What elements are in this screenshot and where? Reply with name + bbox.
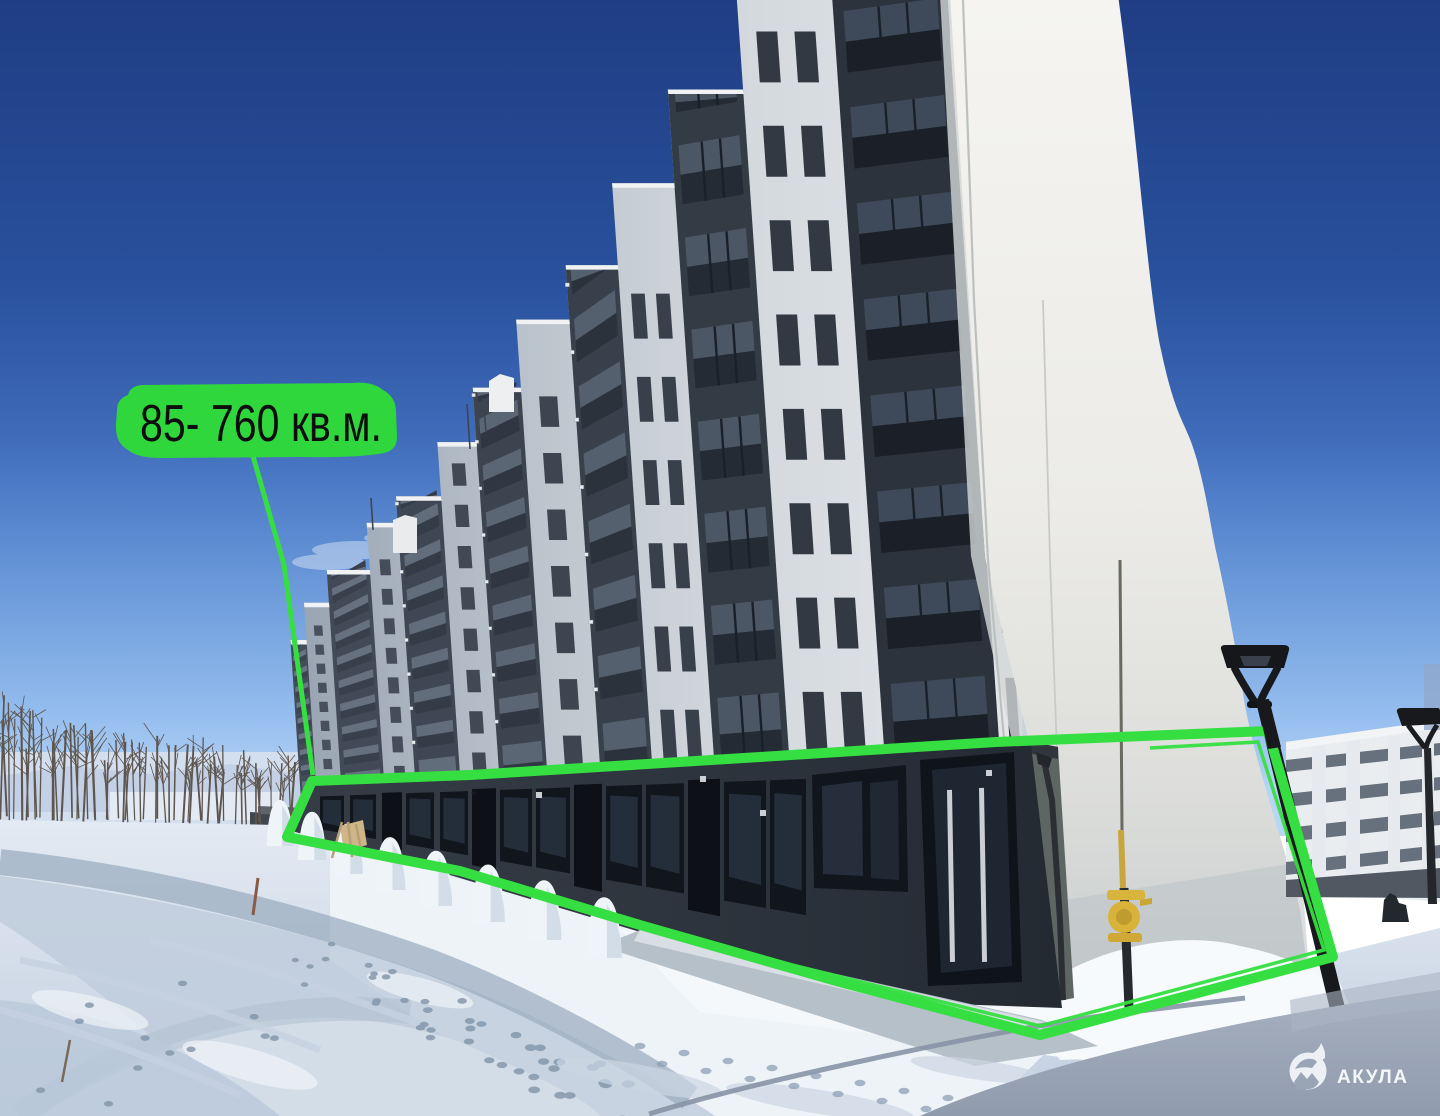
svg-text:АКУЛА: АКУЛА <box>1337 1067 1408 1088</box>
svg-text:85- 760 кв.м.: 85- 760 кв.м. <box>140 395 382 453</box>
